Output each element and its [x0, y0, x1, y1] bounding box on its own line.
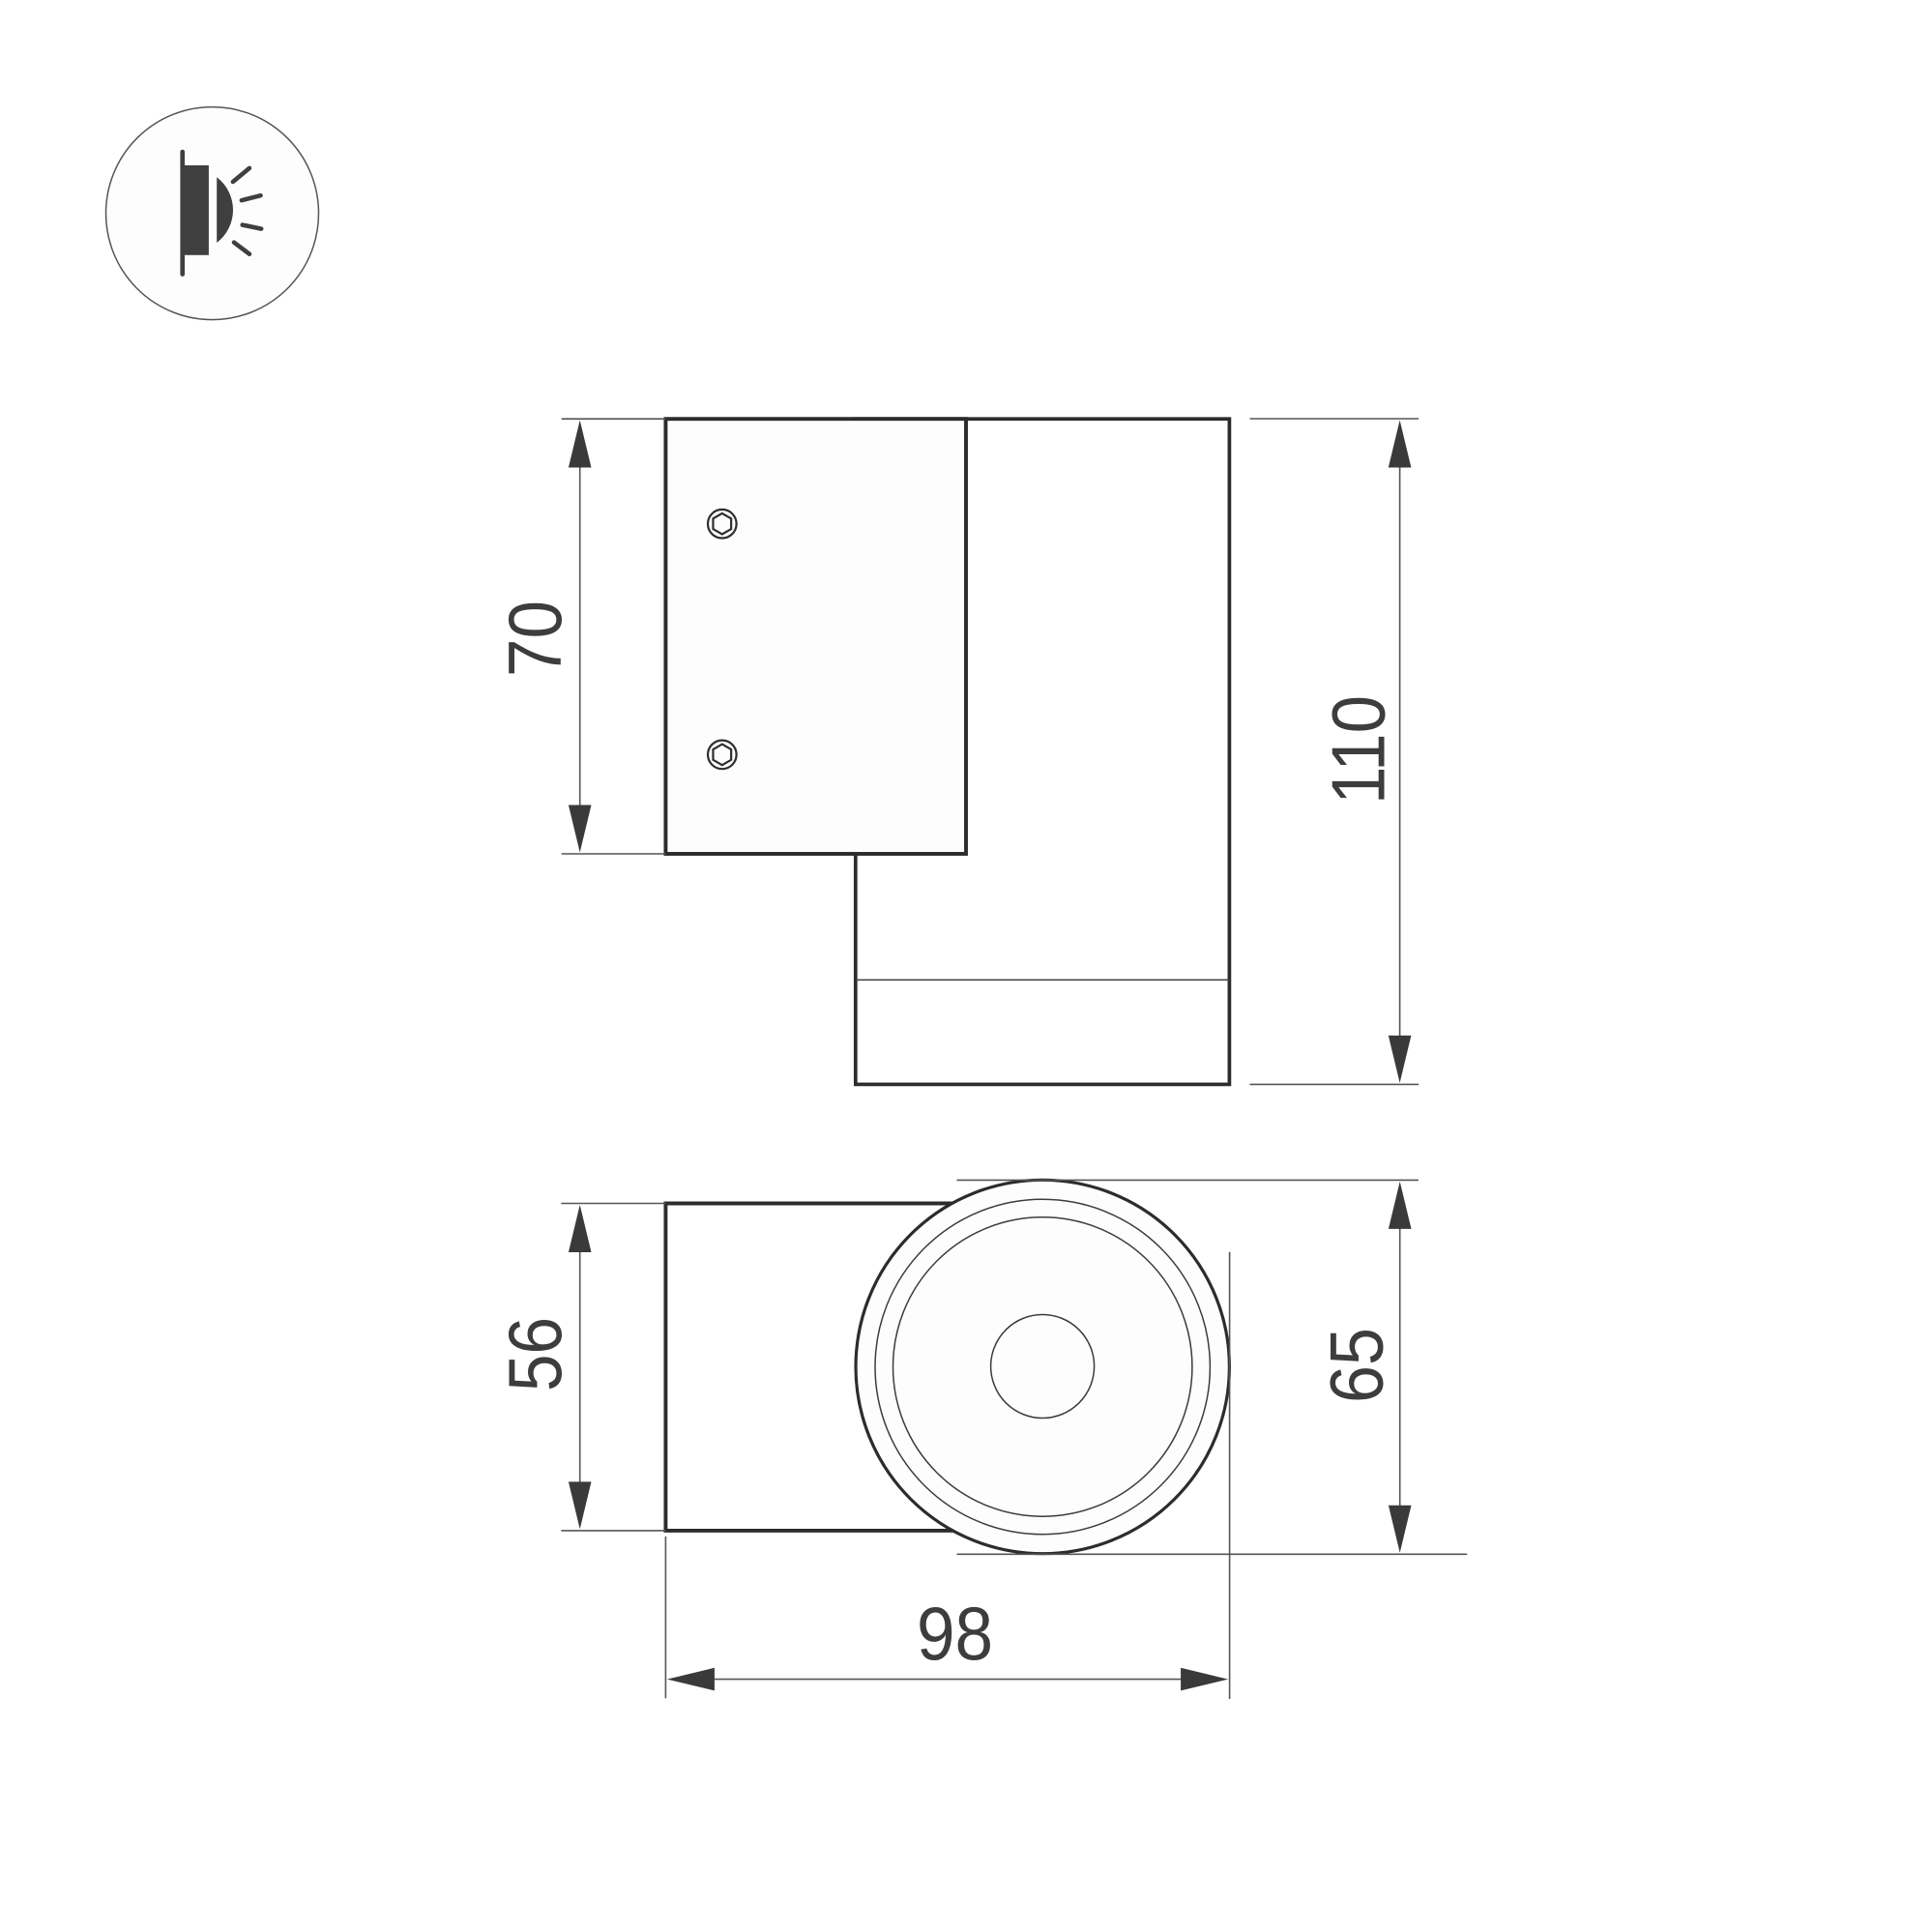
svg-text:70: 70 — [492, 600, 577, 677]
svg-text:110: 110 — [1316, 695, 1401, 805]
svg-text:98: 98 — [917, 1591, 993, 1676]
svg-text:65: 65 — [1314, 1328, 1399, 1403]
svg-text:56: 56 — [492, 1317, 577, 1391]
